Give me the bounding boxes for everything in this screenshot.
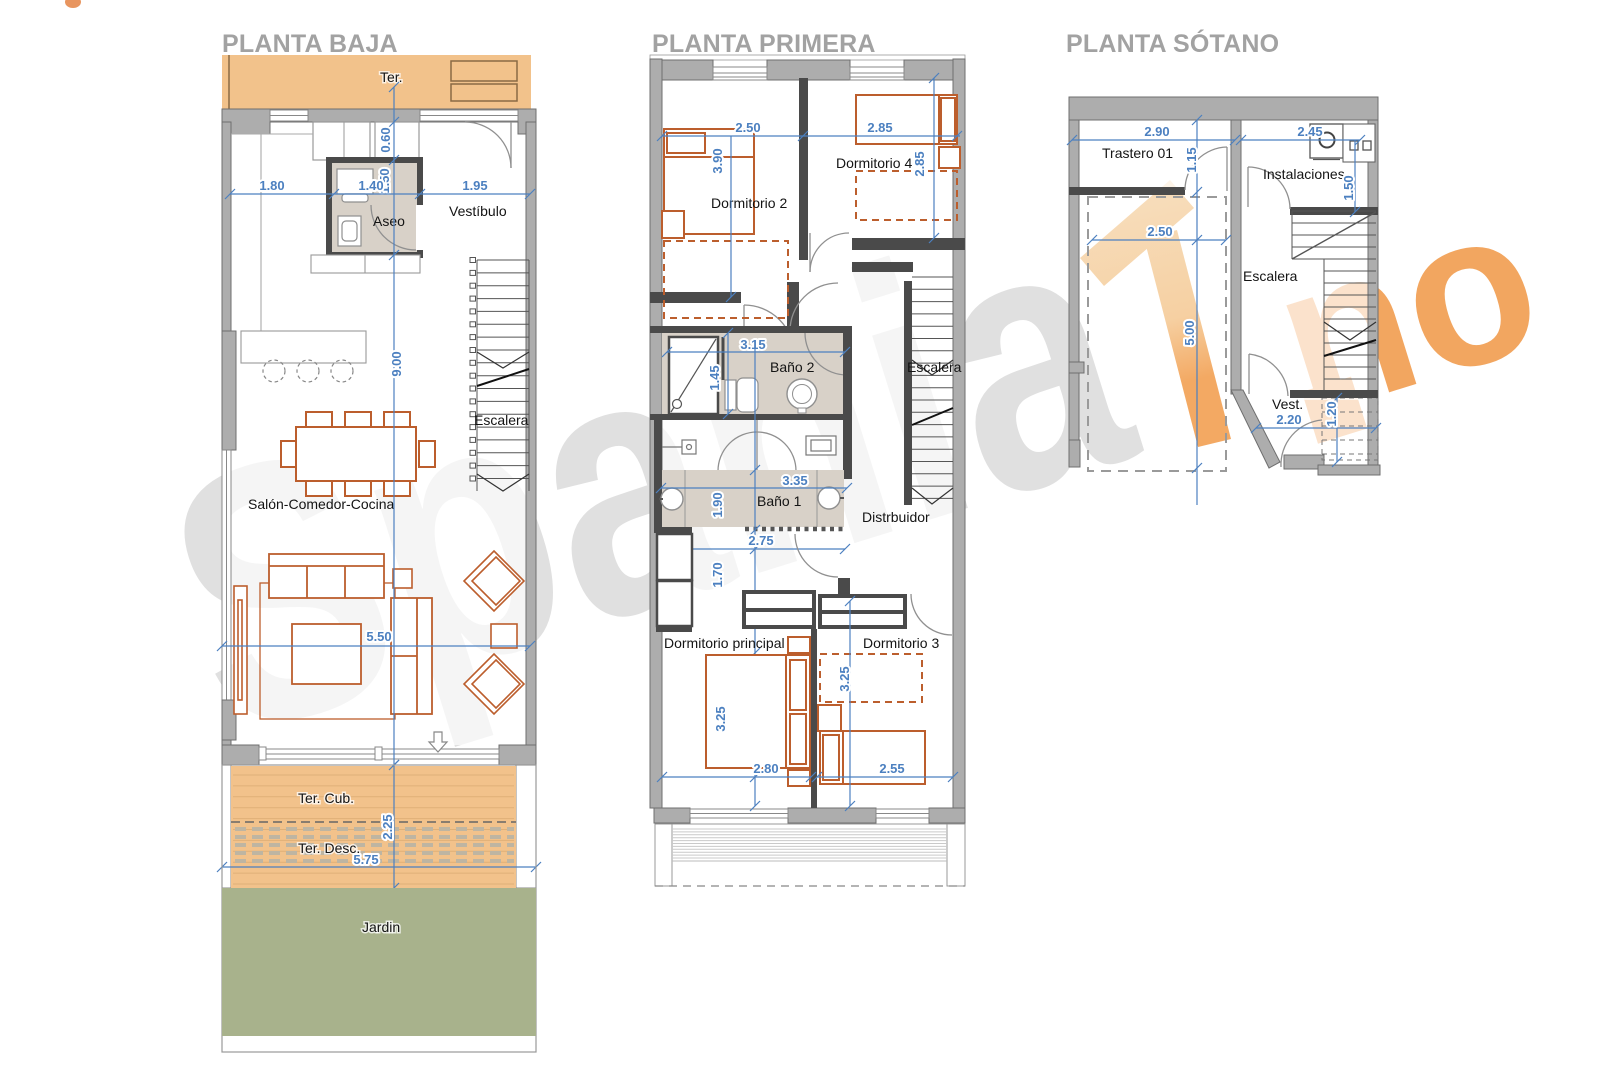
svg-text:1.50: 1.50 [1341,175,1356,200]
svg-text:Ter. Desc.: Ter. Desc. [298,840,360,856]
svg-text:Trastero 01: Trastero 01 [1102,145,1173,161]
svg-text:PLANTA BAJA: PLANTA BAJA [222,30,398,58]
svg-text:0.60: 0.60 [378,127,393,152]
svg-text:1.15: 1.15 [1184,147,1199,172]
svg-text:Dormitorio 3: Dormitorio 3 [863,635,939,651]
svg-text:2.90: 2.90 [1144,124,1169,139]
svg-text:2.80: 2.80 [753,761,778,776]
svg-text:1.45: 1.45 [707,365,722,390]
svg-text:Escalera: Escalera [1243,268,1298,284]
svg-text:1.90: 1.90 [710,492,725,517]
svg-text:Baño 1: Baño 1 [757,493,802,509]
svg-text:1.40: 1.40 [358,178,383,193]
svg-text:Dormitorio 2: Dormitorio 2 [711,195,787,211]
svg-text:Ter. Cub.: Ter. Cub. [298,790,354,806]
svg-text:1.20: 1.20 [1324,401,1339,426]
svg-text:2.45: 2.45 [1297,124,1322,139]
svg-text:PLANTA SÓTANO: PLANTA SÓTANO [1066,28,1279,58]
svg-text:3.90: 3.90 [710,148,725,173]
svg-text:2.85: 2.85 [867,120,892,135]
svg-text:1.80: 1.80 [259,178,284,193]
svg-text:5.00: 5.00 [1182,320,1197,345]
svg-text:Baño 2: Baño 2 [770,359,815,375]
svg-text:2.50: 2.50 [1147,224,1172,239]
svg-text:2.85: 2.85 [912,151,927,176]
svg-text:Instalaciones: Instalaciones [1263,166,1345,182]
svg-text:Distrbuidor: Distrbuidor [862,509,930,525]
svg-text:5.75: 5.75 [353,852,378,867]
svg-text:Vestíbulo: Vestíbulo [449,203,507,219]
svg-text:Dormitorio principal: Dormitorio principal [664,635,785,651]
svg-text:3.25: 3.25 [713,706,728,731]
svg-text:2.25: 2.25 [380,814,395,839]
svg-text:Aseo: Aseo [373,213,405,229]
svg-text:Vest.: Vest. [1272,396,1303,412]
svg-text:2.50: 2.50 [735,120,760,135]
svg-text:Salón-Comedor-Cocina: Salón-Comedor-Cocina [248,496,395,512]
svg-text:Jardin: Jardin [362,919,400,935]
svg-text:Escalera: Escalera [474,412,529,428]
svg-text:2.55: 2.55 [879,761,904,776]
svg-text:3.15: 3.15 [740,337,765,352]
svg-text:Escalera: Escalera [907,359,962,375]
svg-text:3.25: 3.25 [837,666,852,691]
svg-text:Dormitorio 4: Dormitorio 4 [836,155,912,171]
svg-text:2.20: 2.20 [1276,412,1301,427]
svg-text:2.75: 2.75 [748,533,773,548]
svg-text:5.50: 5.50 [366,629,391,644]
svg-text:1.95: 1.95 [462,178,487,193]
svg-text:9.00: 9.00 [389,351,404,376]
svg-text:3.35: 3.35 [782,473,807,488]
svg-text:1.70: 1.70 [710,562,725,587]
svg-text:PLANTA PRIMERA: PLANTA PRIMERA [652,30,876,58]
